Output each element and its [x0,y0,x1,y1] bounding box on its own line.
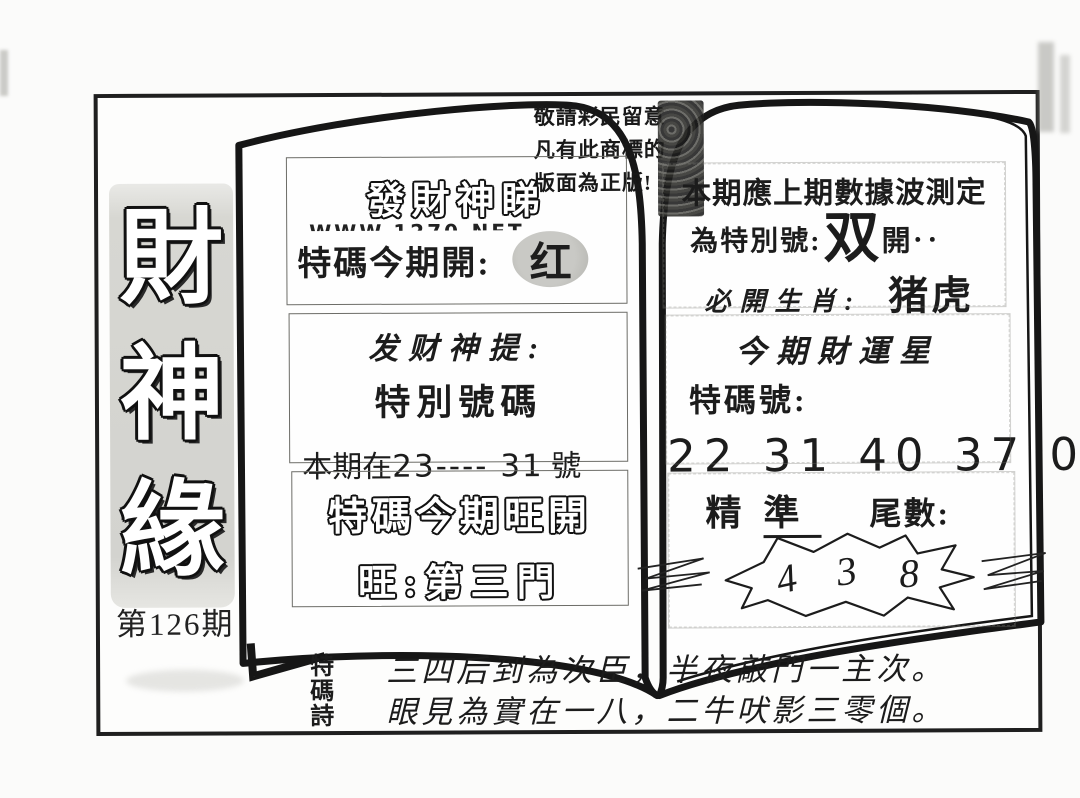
hot-gate-title: 特碼今期旺開 [292,485,627,542]
scan-smudge [126,669,244,692]
poem-label-char-1: 特 [310,655,334,680]
notice-line-1: 敬請彩民留意 [534,101,666,135]
special-sign-label: 為特別號: [690,219,822,260]
tail-digit-3: 8 [897,550,920,596]
left-box-hot-gate: 特碼今期旺開 旺:第三門 [291,470,629,607]
banner-char-2: 神 [120,328,225,464]
left-box-special-number-hint: 发财神提: 特別號碼 本期在23---- 31 號 [289,312,629,463]
scan-noise-streak [0,50,8,96]
special-code-label: 特碼號: [689,374,1009,421]
poem-line-1: 三四后到為次臣，半夜敲門一主次。 [386,648,946,691]
zodiac-label: 必開生肖: [704,281,862,319]
poem-label-char-3: 詩 [310,705,334,730]
special-sign-suffix: 開‥ [881,217,939,259]
banner-char-1: 財 [119,192,224,328]
poem-label-char-2: 碼 [310,680,334,705]
special-code-poem: 特 碼 詩 三四后到為次臣，半夜敲門一主次。 眼見為實在一八，二牛吠影三零個。 [310,648,946,733]
right-box-lucky-numbers: 今期財運星 特碼號: 22 31 40 37 08 37 [666,314,1011,463]
wave-title: 本期應上期數據波測定 [664,169,1004,212]
right-box-tail-numbers: 精準 尾數: 4 3 8 [668,472,1015,628]
poem-line-2: 眼見為實在一八，二牛吠影三零個。 [386,689,946,732]
title-banner: 財 神 緣 [109,183,235,608]
hint-title: 发财神提: [290,323,627,368]
zigzag-right [982,553,1046,589]
scan-noise-streak [1038,42,1054,132]
hot-gate-value: 旺:第三門 [293,551,628,607]
left-box-open-color: 發財神睇 WWW.1270.NET 特碼今期開: 红 [286,156,628,305]
scan-noise-streak [1060,55,1070,133]
issue-number: 第126期 [116,598,235,644]
lucky-star-title: 今期財運星 [667,325,1009,371]
poem-lines: 三四后到為次臣，半夜敲門一主次。 眼見為實在一八，二牛吠影三零個。 [386,648,946,732]
banner-char-3: 緣 [120,464,225,600]
zodiac-value: 猪虎 [888,263,974,321]
starburst-graphic: 4 3 8 [637,525,1045,631]
special-sign-value: 双 [823,214,879,264]
watermark-url: WWW.1270.NET [309,219,524,231]
flyer-sheet: 財 神 緣 第126期 敬請彩民留意 凡有此商標的 版面為正版! 發財神睇 WW… [94,90,1043,736]
right-box-wave-prediction: 本期應上期數據波測定 為特別號: 双 開‥ 必開生肖: 猪虎 [663,162,1006,307]
zigzag-left [638,558,710,590]
open-color-label: 特碼今期開: [297,235,491,285]
poem-label: 特 碼 詩 [310,655,334,733]
open-color-value: 红 [513,231,589,287]
left-box-title: 發財神睇 [287,169,626,225]
special-sign-line: 為特別號: 双 開‥ [690,213,1004,264]
hint-subtitle: 特別號碼 [290,373,627,426]
